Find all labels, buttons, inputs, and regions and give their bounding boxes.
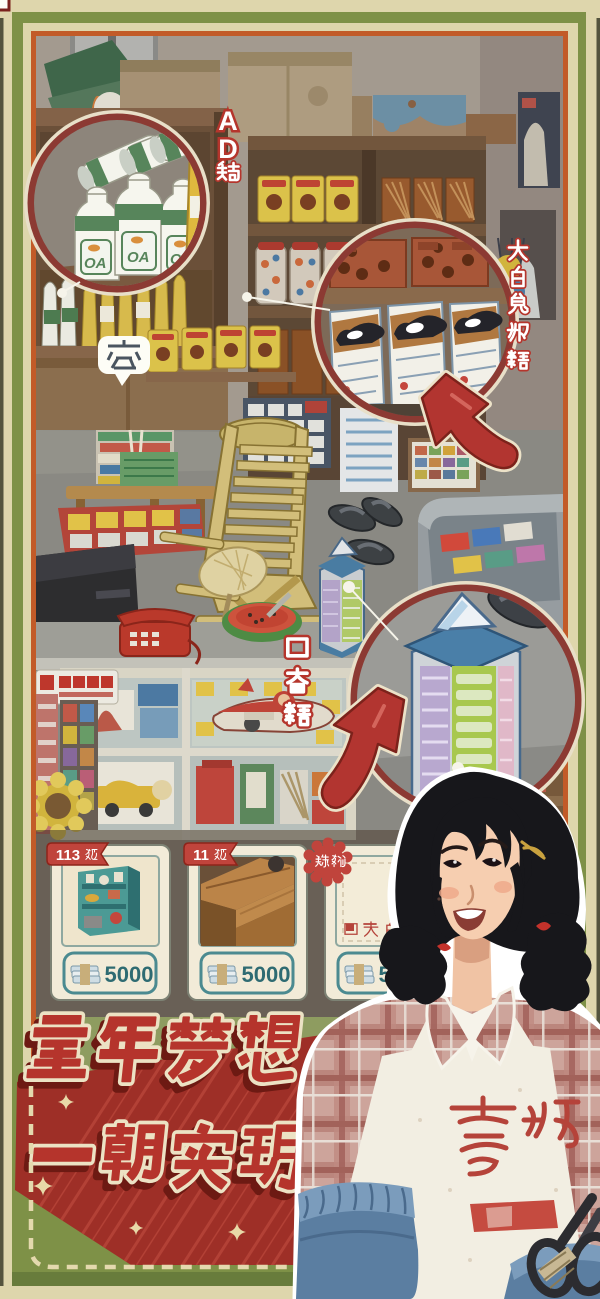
svg-text:113: 113 [56, 847, 80, 864]
svg-text:D: D [218, 134, 238, 164]
svg-text:5000: 5000 [242, 962, 291, 987]
svg-text:OA: OA [127, 249, 150, 266]
svg-text:11: 11 [193, 847, 209, 864]
svg-text:5000: 5000 [105, 962, 154, 987]
svg-text:OA: OA [84, 255, 107, 272]
svg-text:A: A [218, 106, 238, 136]
